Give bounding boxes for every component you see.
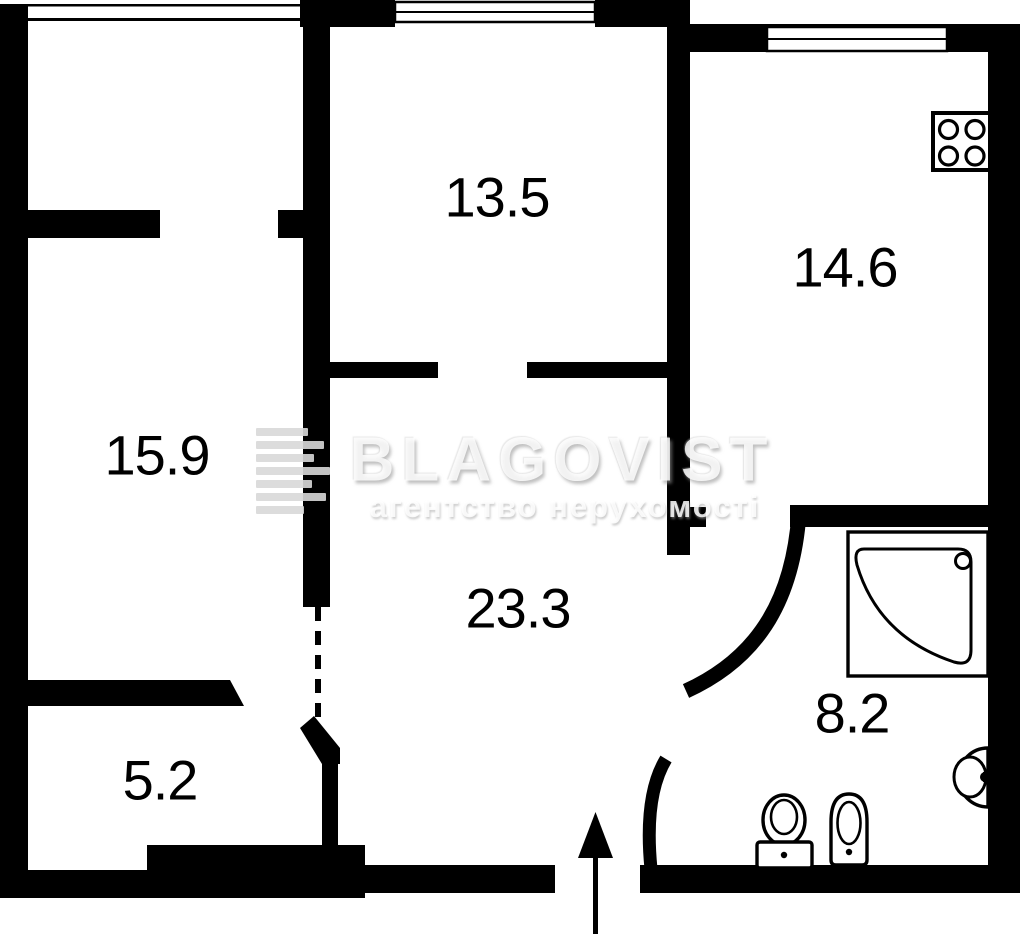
wall-vertical-shared bbox=[303, 0, 330, 607]
room-label-13-5: 13.5 bbox=[445, 165, 550, 230]
wall-13-5-23-3-left bbox=[330, 362, 438, 378]
wall-bottom-c bbox=[365, 865, 555, 893]
wall-balcony-15-9-right bbox=[278, 210, 303, 238]
floor-plan-page: 13.5 14.6 15.9 23.3 5.2 8.2 BLAGOVIST аг… bbox=[0, 0, 1024, 938]
entrance-arrow-icon bbox=[578, 812, 613, 934]
window-balcony bbox=[28, 4, 300, 21]
room-label-14-6: 14.6 bbox=[793, 235, 898, 300]
window-13-5 bbox=[395, 2, 595, 22]
wall-bath-stub bbox=[690, 507, 706, 527]
room-label-8-2: 8.2 bbox=[815, 681, 890, 746]
toilet-icon bbox=[757, 795, 812, 868]
corner-shower-icon bbox=[848, 532, 988, 676]
wall-bottom-b bbox=[147, 845, 365, 898]
wall-left-outer bbox=[0, 4, 28, 898]
door-leaf-entrance bbox=[649, 759, 666, 869]
windows bbox=[28, 2, 947, 51]
stove-burners-icon bbox=[933, 113, 990, 170]
window-14-6 bbox=[767, 27, 947, 51]
wall-right-outer bbox=[988, 24, 1020, 893]
wall-top-bathroom bbox=[790, 505, 1010, 527]
wall-jamb-5-2 bbox=[322, 752, 338, 846]
room-label-23-3: 23.3 bbox=[466, 576, 571, 641]
wall-top-5-2 bbox=[28, 680, 244, 706]
wall-bottom-d bbox=[640, 865, 1010, 893]
wall-13-5-14-6 bbox=[667, 0, 690, 555]
wall-sink-icon bbox=[954, 748, 990, 807]
door-arc-bathroom bbox=[686, 514, 799, 691]
room-label-5-2: 5.2 bbox=[123, 748, 198, 813]
wall-top-13-5-right bbox=[595, 0, 667, 27]
wall-balcony-15-9-left bbox=[28, 210, 160, 238]
bidet-icon bbox=[831, 794, 867, 865]
wall-13-5-23-3-right bbox=[527, 362, 667, 378]
room-label-15-9: 15.9 bbox=[105, 423, 210, 488]
